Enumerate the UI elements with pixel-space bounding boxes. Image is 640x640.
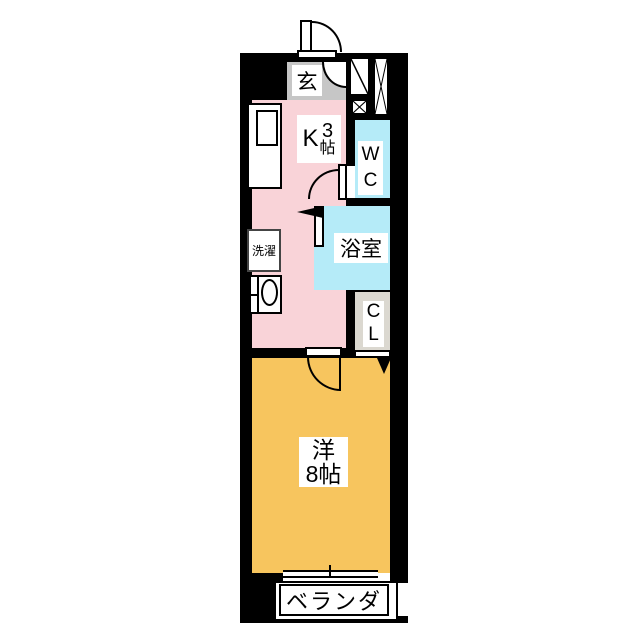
closet-threshold-icon [354, 350, 391, 358]
wc-label-line2: C [364, 168, 378, 194]
kitchen-size-unit: 帖 [320, 141, 336, 157]
wc-label-line1: W [362, 142, 380, 168]
kitchen-label: K [302, 125, 318, 153]
main-room-threshold-icon [305, 347, 342, 357]
bathroom-door-direction-arrow-icon [297, 205, 323, 219]
entrance-door-swing-icon [312, 21, 342, 52]
main-room-label-box: 洋 8帖 [299, 437, 348, 487]
entrance-door-leaf-icon [300, 20, 312, 53]
veranda-label-box: ベランダ [279, 584, 389, 616]
main-room-door-leaf-icon [339, 357, 341, 391]
veranda-label: ベランダ [286, 584, 382, 616]
main-room-size: 8帖 [306, 462, 342, 486]
washbasin-divider [251, 294, 259, 296]
kitchen-sink-icon [256, 110, 278, 146]
washbasin-icon [249, 275, 282, 314]
closet-label-line2: L [368, 324, 379, 347]
entrance-threshold-icon [297, 50, 337, 59]
wc-label-box: W C [358, 141, 383, 195]
washbasin-bowl-icon [261, 279, 278, 306]
pipe-space-icon [351, 99, 368, 115]
meter-box-icon [349, 57, 370, 96]
washing-machine-icon: 洗濯 [247, 229, 281, 272]
window-center-tick [329, 565, 331, 576]
bathroom-label: 浴室 [340, 233, 382, 263]
wall-segment [240, 53, 287, 100]
pipe-space-icon [373, 57, 389, 116]
laundry-label: 洗濯 [252, 242, 276, 259]
genkan-label-box: 玄 [292, 65, 322, 96]
bathroom-label-box: 浴室 [334, 233, 388, 263]
closet-label-box: C L [363, 301, 384, 347]
kitchen-size-value: 3 [322, 121, 333, 141]
closet-door-direction-arrow-icon [377, 358, 391, 374]
kitchen-label-box: K 3 帖 [297, 115, 341, 163]
genkan-label: 玄 [297, 66, 318, 96]
closet-label-line1: C [367, 301, 381, 324]
floor-plan: 洗濯 ベランダ 玄 K 3 帖 W C [0, 0, 640, 640]
window-rail-line [283, 576, 378, 578]
wc-door-leaf-icon [338, 164, 347, 200]
main-room-label: 洋 [312, 438, 335, 462]
